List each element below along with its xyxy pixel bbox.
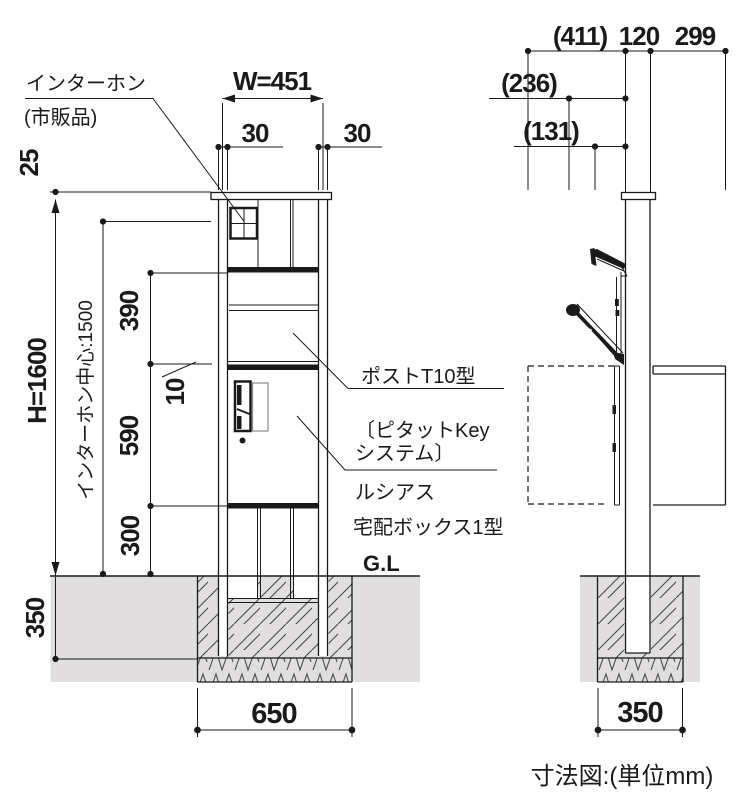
dim-300: 300 [115, 515, 145, 556]
key-system-label-1: 〔ピタットKey [355, 419, 489, 442]
side-foundation-gravel [598, 658, 684, 682]
door-handle [235, 382, 251, 432]
dim-10: 10 [160, 378, 190, 405]
keyhole [240, 438, 246, 444]
door-escutcheon [253, 383, 269, 431]
ground-side [580, 576, 700, 682]
dim-390: 390 [114, 290, 144, 331]
mailbox-top-band [228, 267, 319, 273]
dim-120: 120 [619, 21, 660, 51]
dim-30-right: 30 [344, 118, 371, 148]
series-label: ルシアス [355, 482, 435, 504]
dims-bottom: 650 350 [194, 688, 686, 737]
dim-width-label: W=451 [233, 66, 312, 96]
ground-level-label: G.L [363, 551, 400, 576]
post-cap-front [211, 193, 332, 200]
dim-350-embed: 350 [20, 597, 50, 638]
intercom-window [231, 208, 258, 239]
dim-height: H=1600 [22, 338, 52, 424]
dim-30-left: 30 [242, 118, 269, 148]
dim-650: 650 [251, 698, 296, 730]
flap-knob [566, 304, 580, 316]
dim-cap: 25 [14, 149, 44, 176]
ground-front [51, 576, 421, 682]
dim-131: (131) [523, 116, 579, 146]
dimension-drawing: W=451 30 30 25 H=1600 インターホン中心:1500 390 … [0, 0, 739, 806]
body-box-side [653, 366, 726, 505]
front-foundation-gravel [198, 658, 353, 682]
mail-flap-open [566, 248, 627, 365]
delivery-door-side [613, 366, 620, 505]
dim-411: (411) [553, 21, 608, 51]
dim-350-side: 350 [617, 697, 662, 729]
intercom-note-label: (市販品) [24, 106, 97, 129]
dimension-drawing-page: W=451 30 30 25 H=1600 インターホン中心:1500 390 … [0, 0, 739, 806]
dim-590: 590 [114, 415, 144, 456]
delivery-box-label: 宅配ボックス1型 [353, 516, 504, 539]
intercom-label: インターホン [26, 72, 146, 95]
mailbox-slot [229, 305, 318, 311]
dim-299: 299 [675, 21, 716, 51]
post-model-label: ポストT10型 [361, 365, 475, 388]
dims-side-top: (411) 120 299 (236) (131) [489, 21, 729, 192]
drawing-caption: 寸法図:(単位mm) [531, 763, 714, 790]
door-swing-dashed [528, 366, 614, 504]
door-bottom-band [228, 503, 319, 509]
intercom-panel-seams [258, 200, 293, 268]
dim-236: (236) [501, 68, 557, 98]
post-cap-side [622, 193, 656, 200]
key-system-label-2: システム〕 [355, 442, 454, 465]
dim-intercom-center: インターホン中心:1500 [75, 300, 97, 500]
dims-front-top: W=451 30 30 [215, 66, 382, 190]
mailbox-bottom-band [228, 365, 319, 371]
